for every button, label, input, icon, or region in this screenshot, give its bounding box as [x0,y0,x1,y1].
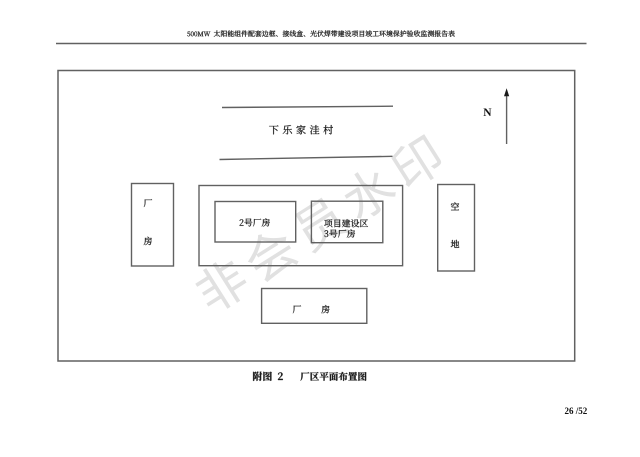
svg-text:N: N [483,107,492,119]
svg-text:26 /52: 26 /52 [565,406,588,416]
